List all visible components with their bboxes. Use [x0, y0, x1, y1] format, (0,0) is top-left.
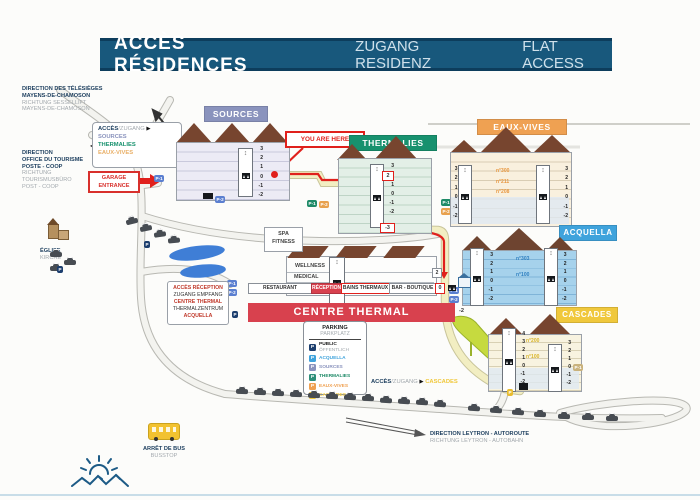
elevator-arrows-icon: ↕: [537, 166, 549, 175]
resort-access-map: { "title_bar": { "fr": "ACCÈS RÉSIDENCES…: [0, 0, 700, 500]
resort-logo: [68, 448, 134, 494]
info-line: ZUGANG EMPFANG: [168, 292, 228, 299]
car-icon: [468, 406, 480, 412]
elevator-arrows-icon: ↕: [459, 166, 471, 175]
elevator-arrows-icon: ↕: [471, 249, 483, 258]
access-cascades-de: /ZUGANG: [391, 379, 417, 385]
acquella-unit-upper: n°303: [516, 254, 529, 265]
arrow-right-icon: ▶: [419, 379, 423, 385]
car-icon: [362, 396, 374, 401]
cascades-unit-upper: n°200: [526, 336, 539, 347]
page-bottom-line: [0, 494, 700, 496]
reception-box: RÉCEPTION: [311, 283, 342, 294]
cascades-elevator-shaft: ↕: [548, 344, 562, 392]
eaux-vives-elevator-shaft: ↕: [458, 165, 472, 224]
eaux-vives-roof: [480, 127, 532, 153]
car-icon: [344, 395, 356, 400]
acquella-roof: [494, 228, 544, 251]
sources-roof: [252, 123, 288, 143]
parking-level-badge: P: [507, 389, 513, 396]
parking-legend: PARKING PARKPLATZ P PUBLIC ÖFFENTLICH P …: [303, 321, 367, 395]
car-icon: [50, 252, 62, 257]
car-icon: [236, 389, 248, 394]
direction-chairlift-fr: DIRECTION DES TÉLÉSIÈGES MAYENS-DE-CHAMO…: [22, 86, 103, 100]
parking-badge-icon: P: [309, 364, 316, 371]
elevator-arrows-icon: ↕: [545, 249, 557, 258]
acquella-elevator-shaft: ↕: [544, 248, 558, 306]
access-item-eaux-vives: EAUX-VIVES: [98, 149, 176, 157]
medical-label: MEDICAL: [294, 274, 319, 280]
acquella-floor-numbers-left: 3 2 1 0 -1 -2: [485, 251, 493, 303]
car-icon: [558, 414, 570, 419]
spa-fitness-box: SPA FITNESS: [264, 227, 303, 252]
bus-icon: [148, 423, 180, 440]
info-line: CENTRE THERMAL: [168, 299, 228, 306]
car-icon: [534, 412, 546, 417]
access-top-de: /ZUGANG: [118, 126, 144, 132]
reception-info-box: ACCÈS RÉCEPTION ZUGANG EMPFANG CENTRE TH…: [167, 281, 229, 325]
parking-level-badge: P-2: [449, 296, 459, 303]
title-fr: ACCÈS RÉSIDENCES: [114, 33, 303, 77]
elevator-icon: [242, 173, 250, 179]
house-icon: [458, 277, 471, 288]
car-icon: [398, 399, 410, 405]
access-item-sources: SOURCES: [98, 133, 176, 141]
direction-tourism-de: RICHTUNG TOURISMUSBÜRO POST - COOP: [22, 170, 83, 190]
eaux-vives-floor-numbers-right: 3 2 1 0 -1 -2: [560, 165, 568, 221]
elevator-icon: [547, 276, 555, 282]
elevator-arrows-icon: ↕: [239, 149, 252, 158]
legend-label: EAUX-VIVES: [319, 384, 348, 389]
eaux-vives-floor-numbers-left: 3 2 1 0 -1 -2: [452, 165, 458, 221]
car-icon: [416, 400, 428, 406]
public-parking-badge: P: [144, 241, 150, 248]
walkway-level-box: 2: [432, 268, 442, 278]
legend-row-sources: P SOURCES: [309, 364, 361, 371]
cascades-roof: [528, 314, 572, 336]
car-icon: [582, 415, 594, 420]
direction-chairlift: DIRECTION DES TÉLÉSIÈGES MAYENS-DE-CHAMO…: [22, 86, 103, 113]
legend-label-de: ÖFFENTLICH: [319, 348, 349, 353]
car-icon: [512, 410, 524, 416]
elevator-icon: [473, 276, 481, 282]
car-icon: [380, 398, 392, 404]
cascades-elevator-shaft: ↕: [502, 328, 516, 392]
elevator-arrows-icon: ↕: [330, 258, 344, 267]
info-line: THERMALZENTRUM: [168, 306, 228, 313]
parking-badge-icon: P: [309, 344, 316, 351]
car-icon: [64, 260, 76, 265]
car-icon: [254, 390, 266, 395]
elevator-icon: [373, 195, 381, 201]
sources-roof: [214, 123, 250, 143]
direction-chairlift-de: RICHTUNG SESSELLIFT MAYENS-DE-CHAMOSON: [22, 100, 103, 114]
route-marker-bar-level: 0: [435, 283, 445, 294]
access-item-thermalies: THERMALIES: [98, 141, 176, 149]
public-parking-badge: P: [232, 311, 238, 318]
direction-tourism: DIRECTION OFFICE DU TOURISME POSTE - COO…: [22, 150, 83, 191]
title-bar: ACCÈS RÉSIDENCES ZUGANG RESIDENZ FLAT AC…: [100, 38, 612, 71]
direction-tourism-fr: DIRECTION OFFICE DU TOURISME POSTE - COO…: [22, 150, 83, 170]
access-cascades-target: CASCADES: [425, 379, 458, 385]
car-icon: [434, 402, 446, 408]
pond: [168, 243, 226, 280]
building-label-sources: SOURCES: [204, 106, 268, 122]
elevator-arrows-icon: ↕: [503, 329, 515, 338]
legend-label: ACQUELLA: [319, 356, 346, 361]
car-icon: [326, 394, 338, 399]
legend-label: THERMALIES: [319, 374, 350, 379]
route-marker-thermalies-entry: 2: [382, 171, 394, 181]
elevator-icon: [539, 194, 547, 200]
acquella-floor-numbers-right: 3 2 1 0 -1 -2: [559, 251, 567, 303]
title-en: FLAT ACCESS: [522, 38, 612, 72]
car-icon: [290, 392, 302, 397]
bus-stop-fr: ARRÊT DE BUS: [128, 446, 200, 453]
car-icon: [490, 408, 502, 414]
arrow-right-icon: ▶: [146, 126, 150, 132]
legend-title-de: PARKPLATZ: [309, 331, 361, 337]
church-icon: [48, 224, 59, 239]
parking-badge-icon: P: [309, 355, 316, 362]
centre-elevator-shaft: ↕: [329, 257, 345, 304]
access-cascades-fr: ACCÈS: [371, 379, 391, 385]
parking-badge-icon: P: [309, 383, 316, 390]
direction-leytron-de: RICHTUNG LEYTRON - AUTOBAHN: [430, 438, 529, 445]
access-cascades: ACCÈS/ZUGANG ▶ CASCADES: [371, 379, 458, 386]
parking-level-badge: P-1: [307, 200, 317, 207]
legend-row-eaux-vives: P EAUX-VIVES: [309, 383, 361, 390]
elevator-icon: [461, 194, 469, 200]
parking-level-badge: P-2: [215, 196, 225, 203]
elevator-icon: [551, 367, 559, 373]
centre-thermal-banner: CENTRE THERMAL: [248, 303, 455, 322]
thermalies-roof: [374, 136, 418, 160]
acquella-unit-lower: n°100: [516, 270, 529, 281]
cascades-floor-numbers-left: 4 3 2 1 0 -1 -2: [517, 330, 525, 386]
parking-badge-icon: P: [309, 374, 316, 381]
elevator-icon: [505, 359, 513, 365]
car-icon: [606, 416, 618, 421]
cascades-floor-numbers-right: 3 2 1 0 -1 -2: [563, 339, 571, 387]
cascades-door: [519, 383, 528, 390]
sources-floor-numbers: 3 2 1 0 -1 -2: [255, 145, 263, 200]
car-icon: [272, 391, 284, 396]
bus-stop-de: BUSSTOP: [128, 453, 200, 460]
sources-door: [203, 193, 213, 199]
sources-elevator-shaft: ↕: [238, 148, 253, 197]
wellness-label: WELLNESS: [295, 263, 325, 269]
leytron-arrow: [346, 418, 426, 437]
bus-stop-label: ARRÊT DE BUS BUSSTOP: [128, 446, 200, 460]
car-icon: [308, 393, 320, 398]
direction-leytron: DIRECTION LEYTRON - AUTOROUTE RICHTUNG L…: [430, 431, 529, 445]
direction-leytron-fr: DIRECTION LEYTRON - AUTOROUTE: [430, 431, 529, 438]
restaurant-box: RESTAURANT: [248, 283, 312, 294]
legend-row-thermalies: P THERMALIES: [309, 374, 361, 381]
acquella-elevator-shaft: ↕: [470, 248, 484, 306]
legend-label: SOURCES: [319, 365, 343, 370]
hall-divider: [287, 272, 434, 273]
legend-row-public: P PUBLIC ÖFFENTLICH: [309, 342, 361, 353]
title-de: ZUGANG RESIDENZ: [355, 38, 484, 72]
sources-roof: [176, 123, 212, 143]
garage-entrance-box: GARAGE ENTRANCE: [88, 171, 140, 193]
public-parking-badge: P: [57, 266, 63, 273]
eaux-vives-elevator-shaft: ↕: [536, 165, 550, 224]
banner-level-label: -2: [459, 308, 464, 314]
parking-level-badge: P-1: [154, 175, 164, 182]
legend-row-acquella: P ACQUELLA: [309, 355, 361, 362]
you-are-here-dot: [271, 171, 278, 178]
bains-thermaux-box: BAINS THERMAUX: [341, 283, 390, 294]
info-line: ACCÈS RÉCEPTION: [168, 285, 228, 292]
bar-boutique-box: BAR - BOUTIQUE: [389, 283, 436, 294]
eaux-vives-unit-numbers: n°300 n°211 n°208: [496, 166, 509, 198]
cascades-unit-lower: n°100: [526, 352, 539, 363]
access-top-fr: ACCÈS: [98, 126, 118, 132]
parking-level-badge: P-1: [573, 364, 583, 371]
access-box-top: ACCÈS/ZUGANG ▶ SOURCES THERMALIES EAUX-V…: [92, 122, 182, 168]
info-line: ACQUELLA: [168, 313, 228, 320]
elevator-icon: [448, 285, 456, 291]
parking-level-badge: P-2: [319, 201, 329, 208]
route-marker-thermalies-lower: -3: [380, 223, 395, 233]
elevator-arrows-icon: ↕: [549, 345, 561, 354]
eaux-vives-roof: [533, 135, 571, 153]
